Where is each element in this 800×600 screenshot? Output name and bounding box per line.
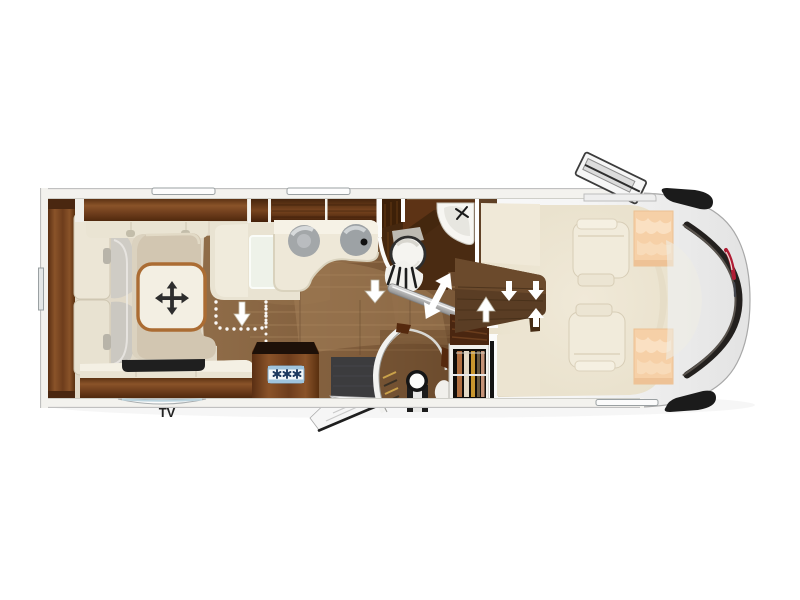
svg-text:TV: TV — [159, 405, 176, 420]
